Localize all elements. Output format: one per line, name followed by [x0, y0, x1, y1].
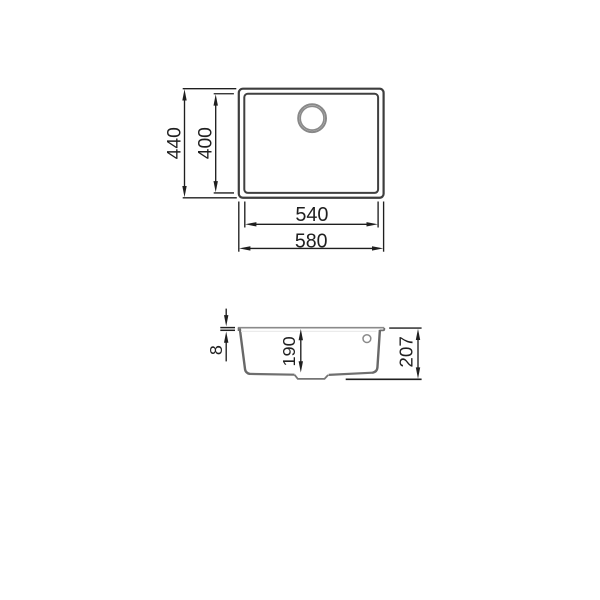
svg-text:440: 440	[165, 127, 186, 159]
svg-text:400: 400	[195, 127, 216, 159]
svg-text:190: 190	[279, 336, 299, 366]
svg-text:207: 207	[397, 336, 418, 368]
svg-text:8: 8	[206, 345, 226, 355]
svg-text:580: 580	[295, 230, 328, 253]
svg-text:540: 540	[295, 204, 328, 226]
